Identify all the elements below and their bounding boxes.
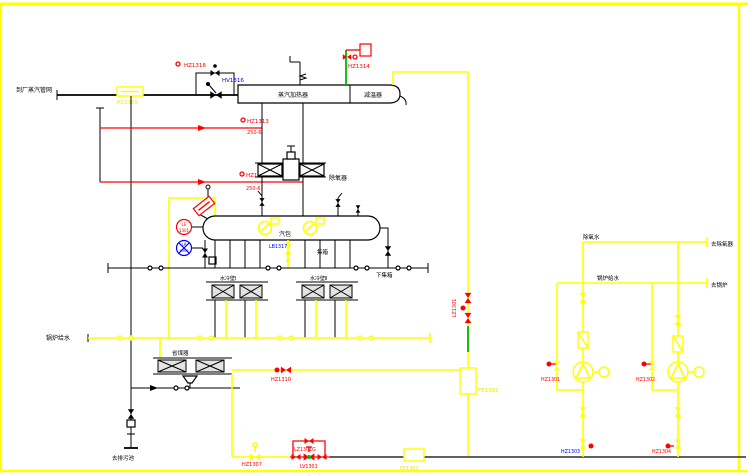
steam-drum: 汽包: [203, 193, 391, 268]
left-stub-line: [96, 108, 104, 182]
drop-line-valve-lower-icon: [465, 313, 472, 323]
vessel-drain: [400, 96, 406, 105]
lb1317-tag: LB1317: [269, 244, 287, 250]
suction-valve-icon: [580, 439, 586, 449]
steam-heater-vessel: 蒸汽加热器 减温器 HZ1314: [238, 44, 406, 105]
lineB-right-label: 去锅炉: [711, 281, 728, 289]
lower-header-label: 下集箱: [376, 271, 393, 279]
waterwall-left-label: 水冷壁Ⅰ: [220, 275, 236, 282]
waterwall-downcomers: [215, 300, 346, 338]
lineA-right-label: 去除氧器: [711, 240, 734, 248]
hz1310-tag: HZ1310: [271, 377, 291, 383]
bottom-suction-header: FE1301: [330, 449, 746, 472]
hz1314-instrument-box: [360, 44, 371, 56]
steam-source-label: 到厂蒸汽管网: [16, 86, 52, 94]
lineA-left-label: 除氧水: [583, 233, 600, 241]
lower-header-line: 下集箱: [108, 263, 428, 279]
hz1302-tag: HZ1302: [636, 377, 655, 383]
flow-arrow-icon: [198, 179, 206, 185]
economizer-label: 省煤器: [172, 349, 189, 357]
blowdown-valve-icon: [128, 409, 134, 419]
economizer: 省煤器: [131, 338, 240, 391]
discharge-valve-icon: [580, 293, 587, 303]
hz1314-tag: HZ1314: [348, 64, 370, 70]
waterwall-right-label: 水冷壁Ⅱ: [310, 275, 327, 282]
hv1316-tag: HV1316: [222, 78, 244, 84]
feed-pump-2: HZ1304 HZ1302: [636, 242, 704, 457]
downcomer-valve-icon: [385, 246, 391, 256]
deaerator-label: 除氧器: [329, 174, 347, 182]
hz1301-tag: HZ1301: [541, 377, 560, 383]
drop-line-valve-upper-icon: [465, 293, 472, 303]
feedwater-header: 锅炉给水: [46, 333, 430, 343]
feedwater-control-station: HZ1307 LZ1301G LV1301: [232, 374, 330, 470]
waterwall-left: 水冷壁Ⅰ: [206, 275, 268, 300]
feed-pump-1: HZ1303 HZ1301: [541, 242, 609, 457]
tilted-gauge-glass-icon: [193, 196, 214, 215]
boiler-steam-water-pid: 到厂蒸汽管网 HZ1318 HV1316 PC1305 去排污池 HZ1313: [0, 0, 748, 476]
flow-arrow-icon: [150, 385, 158, 391]
feedwater-header-label: 锅炉给水: [46, 334, 70, 342]
vessel-outlet-yellow-line: LZ1301 FE1302: [393, 72, 499, 457]
deaerator-section: 除氧器: [206, 103, 347, 216]
check-valve-icon: [580, 407, 586, 417]
lz1301-vertical-tag: LZ1301: [452, 299, 458, 318]
motor-icon: [694, 367, 704, 377]
hz1310-valve-icon: [281, 367, 291, 374]
hz1304-tag: HZ1304: [652, 449, 671, 455]
fe1301-tag: FE1301: [400, 466, 419, 472]
main-steam-line: 到厂蒸汽管网 HZ1318 HV1316 PC1305: [16, 62, 244, 106]
la-tag-line1: LA: [181, 242, 186, 247]
fe1301-flow-element-box: [404, 449, 424, 461]
blowdown-label: 去排污池: [112, 454, 135, 462]
economizer-drain-funnel: [183, 376, 197, 383]
lineB-left-label: 锅炉给水: [597, 274, 620, 282]
bypass-valve-icon: [305, 438, 314, 444]
lv1301-tag: LV1301: [300, 464, 318, 470]
lz1301g-tag: LZ1301G: [294, 447, 316, 453]
hz1313-tag: HZ1313: [247, 119, 269, 125]
fe1302-instrument-box: [460, 368, 476, 394]
economizer-outlet-line: HZ1310: [232, 367, 460, 383]
le-tag-line2: 1301: [179, 228, 190, 233]
pc1305-tag: PC1305: [117, 100, 139, 106]
flow-arrow-icon: [198, 125, 206, 131]
hz1318-tag: HZ1318: [184, 63, 206, 69]
hz1314-valve-icon: [343, 54, 351, 60]
discharge-valve-icon: [675, 315, 682, 325]
hz1303-tag: HZ1303: [561, 449, 580, 455]
jixiang-label: 集箱: [317, 248, 329, 256]
blowdown-line: 去排污池: [112, 96, 138, 462]
drum-label: 汽包: [279, 230, 291, 238]
red-line-hz1313: HZ1313 250-6: [100, 118, 269, 136]
recirc-valve-icon: [649, 362, 655, 371]
fe1302-tag: FE1302: [478, 388, 499, 394]
waterwall-right: 水冷壁Ⅱ: [296, 275, 358, 300]
pid-drawing-canvas: 到厂蒸汽管网 HZ1318 HV1316 PC1305 去排污池 HZ1313: [0, 0, 748, 476]
vessel-left-label: 蒸汽加热器: [278, 91, 308, 99]
hz1313-spec: 250-6: [247, 130, 262, 136]
la-tag-line2: 1302: [179, 248, 189, 253]
vessel-right-label: 减温器: [364, 91, 382, 99]
hz1307-tag: HZ1307: [242, 462, 262, 468]
safety-valve-icon: [290, 56, 306, 85]
recirc-valve-icon: [554, 362, 560, 371]
bypass-valve-icon: [211, 70, 220, 76]
motor-icon: [599, 367, 609, 377]
